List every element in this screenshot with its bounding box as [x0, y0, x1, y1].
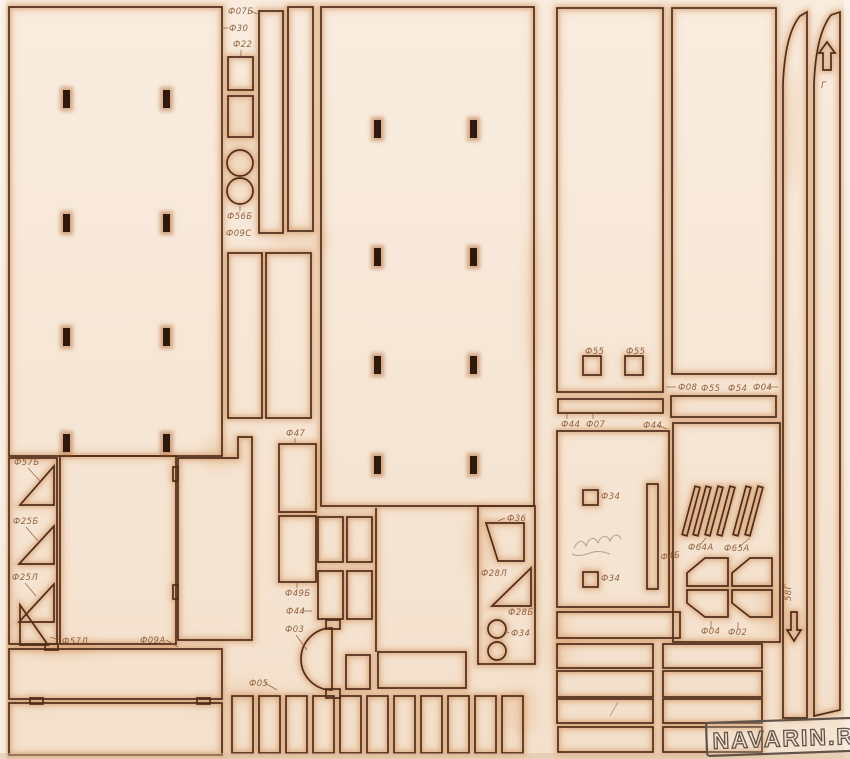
part-label: Ф25Л	[12, 573, 38, 583]
part-label: Ф55	[701, 384, 720, 394]
part-label: Ф44	[643, 421, 662, 431]
part-label: Ф25Б	[13, 517, 39, 527]
part-label: Г	[821, 81, 827, 91]
part-label: Ф47	[286, 429, 306, 439]
part-label: Ф02	[728, 628, 747, 638]
watermark: NAVARIN.RU	[706, 717, 850, 756]
part-label: Ф34	[601, 574, 620, 584]
part-label: Ф65А	[724, 544, 750, 554]
part-label: Ф05	[249, 679, 268, 689]
part-label: Ф55	[626, 347, 645, 357]
part-label: Ф34	[511, 629, 530, 639]
part-label: Ф44	[286, 607, 305, 617]
part-label: Ф08	[678, 383, 698, 393]
lasercut-sheet-scan: Ф07БФ30Ф22Ф56БФ09СФ57БФ25БФ25ЛФ57ЛФ09АФ4…	[0, 0, 850, 759]
part-label: Ф54	[728, 384, 747, 394]
part-label: Ф55	[585, 347, 604, 357]
part-label: Ф04	[701, 627, 720, 637]
part-label: Ф30	[229, 24, 248, 34]
part-label: Ф28Л	[481, 569, 507, 579]
part-label: Ф56Б	[227, 212, 253, 222]
scan-edge-left	[0, 0, 6, 759]
part-label: Ф07Б	[228, 7, 254, 17]
part-label: Ф49Б	[285, 589, 311, 599]
part-label: Ф44	[561, 420, 580, 430]
part-label: Ф07	[586, 420, 606, 430]
part-label: Ф04	[753, 383, 772, 393]
scan-canvas: Ф07БФ30Ф22Ф56БФ09СФ57БФ25БФ25ЛФ57ЛФ09АФ4…	[0, 0, 850, 759]
part-label: Ф64А	[688, 543, 714, 553]
part-label: Ф36	[507, 514, 527, 524]
part-label: Ф09С	[226, 229, 252, 239]
part-label: Ф22	[233, 40, 252, 50]
part-label: Ф34	[601, 492, 620, 502]
part-label: Ф28Б	[508, 608, 534, 618]
scan-edge-right	[844, 0, 850, 759]
part-label: Ф57Л	[62, 637, 88, 647]
part-label: Ф09А	[140, 636, 166, 646]
watermark-text: NAVARIN.RU	[712, 722, 850, 754]
part-label: Ф57Б	[14, 458, 40, 468]
part-label: Ф03	[285, 625, 304, 635]
part-label: 58Г	[784, 583, 794, 601]
